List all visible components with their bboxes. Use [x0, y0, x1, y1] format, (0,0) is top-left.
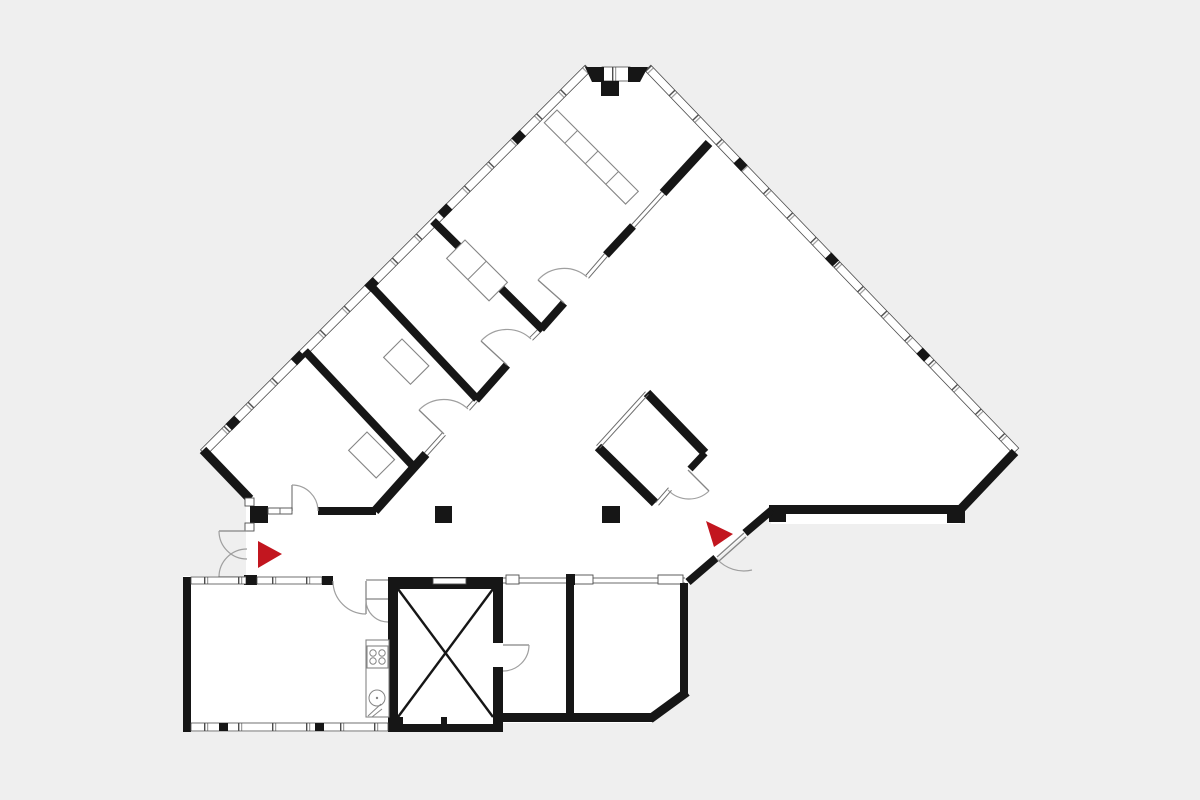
pilaster [947, 505, 965, 523]
kitchenette [366, 640, 389, 717]
annex-partition [566, 585, 574, 713]
floor-plan-page [0, 0, 1200, 800]
column [602, 506, 620, 523]
floor-plan-drawing [0, 0, 1200, 800]
column [601, 81, 619, 96]
annex-east-wall [680, 583, 688, 695]
column [250, 506, 268, 523]
annex-west-wall [183, 577, 191, 732]
stove [367, 646, 388, 668]
column [435, 506, 452, 523]
